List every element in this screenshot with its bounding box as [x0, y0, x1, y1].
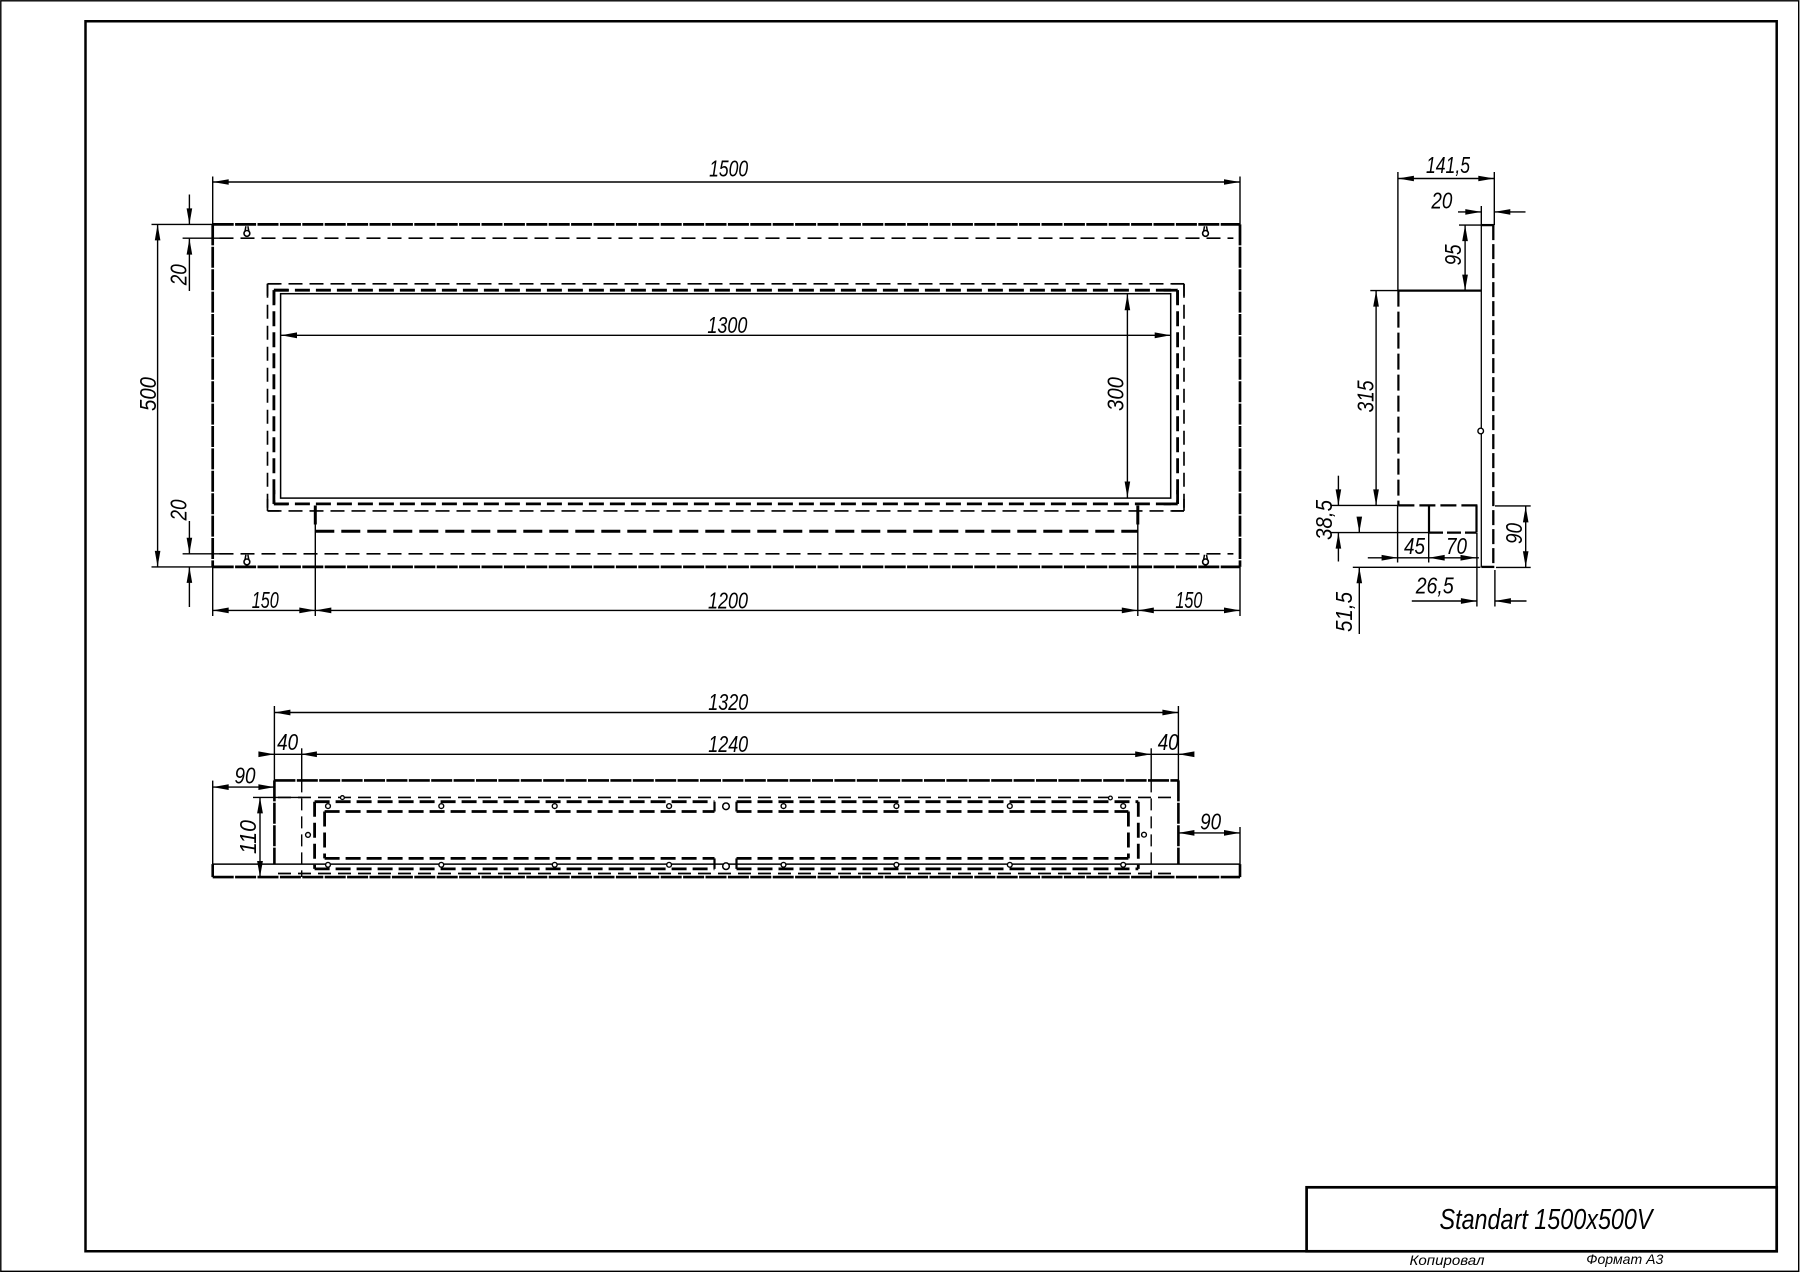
svg-text:150: 150: [252, 587, 279, 613]
svg-text:141,5: 141,5: [1426, 152, 1470, 178]
svg-text:500: 500: [135, 377, 161, 411]
svg-text:95: 95: [1440, 244, 1466, 265]
svg-text:51,5: 51,5: [1331, 592, 1357, 632]
svg-text:1500: 1500: [709, 156, 748, 182]
svg-text:40: 40: [1158, 729, 1179, 755]
svg-text:150: 150: [1175, 587, 1202, 613]
svg-text:40: 40: [277, 729, 298, 755]
svg-text:110: 110: [235, 820, 261, 854]
svg-text:1320: 1320: [708, 689, 748, 715]
svg-text:20: 20: [1431, 188, 1453, 214]
svg-text:Standart 1500x500V: Standart 1500x500V: [1440, 1204, 1655, 1236]
svg-text:20: 20: [166, 499, 192, 521]
svg-text:315: 315: [1352, 380, 1378, 412]
svg-text:90: 90: [235, 763, 256, 789]
svg-text:Формат А3: Формат А3: [1586, 1251, 1663, 1267]
svg-text:38,5: 38,5: [1311, 500, 1337, 540]
svg-text:90: 90: [1501, 523, 1527, 544]
svg-text:Копировал: Копировал: [1410, 1252, 1485, 1268]
svg-text:20: 20: [166, 264, 192, 286]
svg-text:1200: 1200: [708, 587, 748, 613]
svg-text:45: 45: [1404, 533, 1425, 559]
svg-text:70: 70: [1446, 533, 1467, 559]
svg-text:1300: 1300: [707, 312, 747, 338]
svg-text:26,5: 26,5: [1415, 573, 1454, 599]
svg-text:90: 90: [1200, 809, 1221, 835]
svg-text:1240: 1240: [708, 731, 748, 757]
svg-text:300: 300: [1103, 377, 1129, 411]
